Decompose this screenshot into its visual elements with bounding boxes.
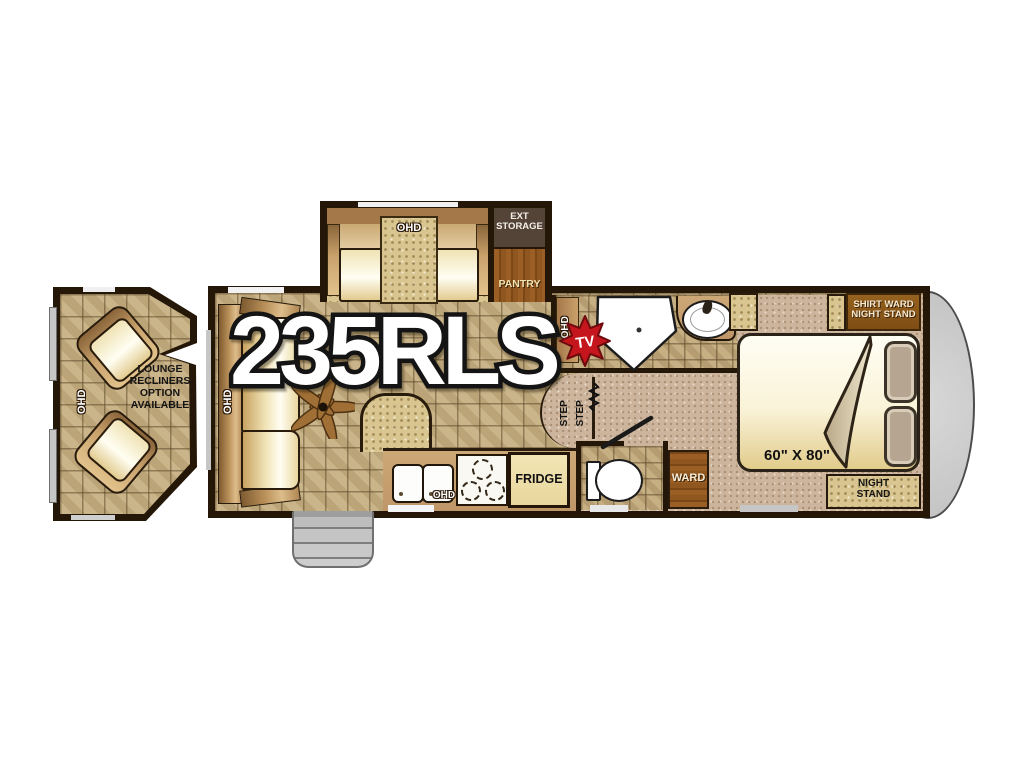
kitchen-sink	[392, 464, 424, 503]
slide-console: OHD	[380, 216, 438, 304]
tv-badge-text: TV	[575, 333, 596, 353]
window-segment	[388, 505, 434, 512]
burner	[461, 481, 481, 501]
floorplan-canvas: LOUNGE RECLINERS OPTION AVAILABLE OHD	[0, 0, 1024, 768]
lounge-option-line: OPTION	[140, 387, 180, 399]
burner	[472, 459, 493, 480]
stove	[456, 454, 508, 506]
shirt-ward-label2: NIGHT STAND	[851, 309, 915, 320]
wardrobe: WARD	[668, 450, 709, 509]
window-segment	[590, 505, 628, 512]
window-segment	[228, 287, 284, 293]
burner	[485, 481, 505, 501]
bedroom-cabinet	[729, 293, 758, 331]
pantry-label: PANTRY	[494, 279, 545, 290]
shirt-ward-night-stand: SHIRT WARD NIGHT STAND	[846, 293, 921, 331]
model-title-text: 235RLS	[230, 298, 557, 405]
toilet-room-wall	[576, 441, 581, 511]
window-segment	[83, 287, 115, 292]
lounge-option-line: LOUNGE	[138, 363, 183, 375]
pillow	[884, 341, 917, 403]
ext-storage: EXT STORAGE	[494, 208, 545, 249]
lounge-option-label: LOUNGE RECLINERS OPTION AVAILABLE	[127, 363, 193, 411]
bedroom-cabinet	[827, 294, 846, 331]
fridge-label: FRIDGE	[511, 473, 567, 486]
slide-rail	[49, 429, 57, 503]
door-swing	[598, 412, 658, 452]
slideout-interior: OHD EXT STORAGE PANTRY	[327, 208, 545, 302]
window-segment	[71, 515, 115, 520]
slide-sofa-cushion	[434, 248, 479, 302]
sink-drain	[399, 492, 403, 496]
slide-rail	[49, 307, 57, 381]
night-stand-label: NIGHT	[858, 478, 889, 489]
sofa-slideout: OHD EXT STORAGE PANTRY	[320, 201, 552, 302]
bath-sink	[682, 300, 733, 339]
lounge-option-module: LOUNGE RECLINERS OPTION AVAILABLE OHD	[53, 287, 197, 521]
ward-label: WARD	[670, 473, 707, 485]
pantry: PANTRY	[494, 249, 545, 302]
window-segment	[206, 330, 211, 470]
model-title: 235RLS	[224, 298, 604, 410]
night-stand: NIGHT STAND	[826, 474, 921, 509]
fridge: FRIDGE	[508, 452, 570, 508]
bed-size-label: 60" X 80"	[752, 448, 842, 464]
window-segment	[740, 505, 798, 512]
tv-badge: TV	[558, 314, 612, 368]
night-stand-label2: STAND	[857, 489, 891, 500]
ext-storage-label: STORAGE	[496, 221, 543, 232]
sofa-cushion	[241, 430, 300, 490]
entry-steps	[292, 511, 374, 568]
option-ohd-label: OHD	[77, 384, 89, 420]
lounge-option-line: AVAILABLE	[131, 399, 190, 411]
slide-sofa-cushion	[339, 248, 384, 302]
slideout-ohd-label: OHD	[382, 223, 436, 235]
pillow	[884, 406, 917, 467]
toilet-bowl	[595, 459, 643, 502]
lounge-option-line: RECLINERS	[130, 375, 191, 387]
window-segment	[358, 202, 458, 207]
